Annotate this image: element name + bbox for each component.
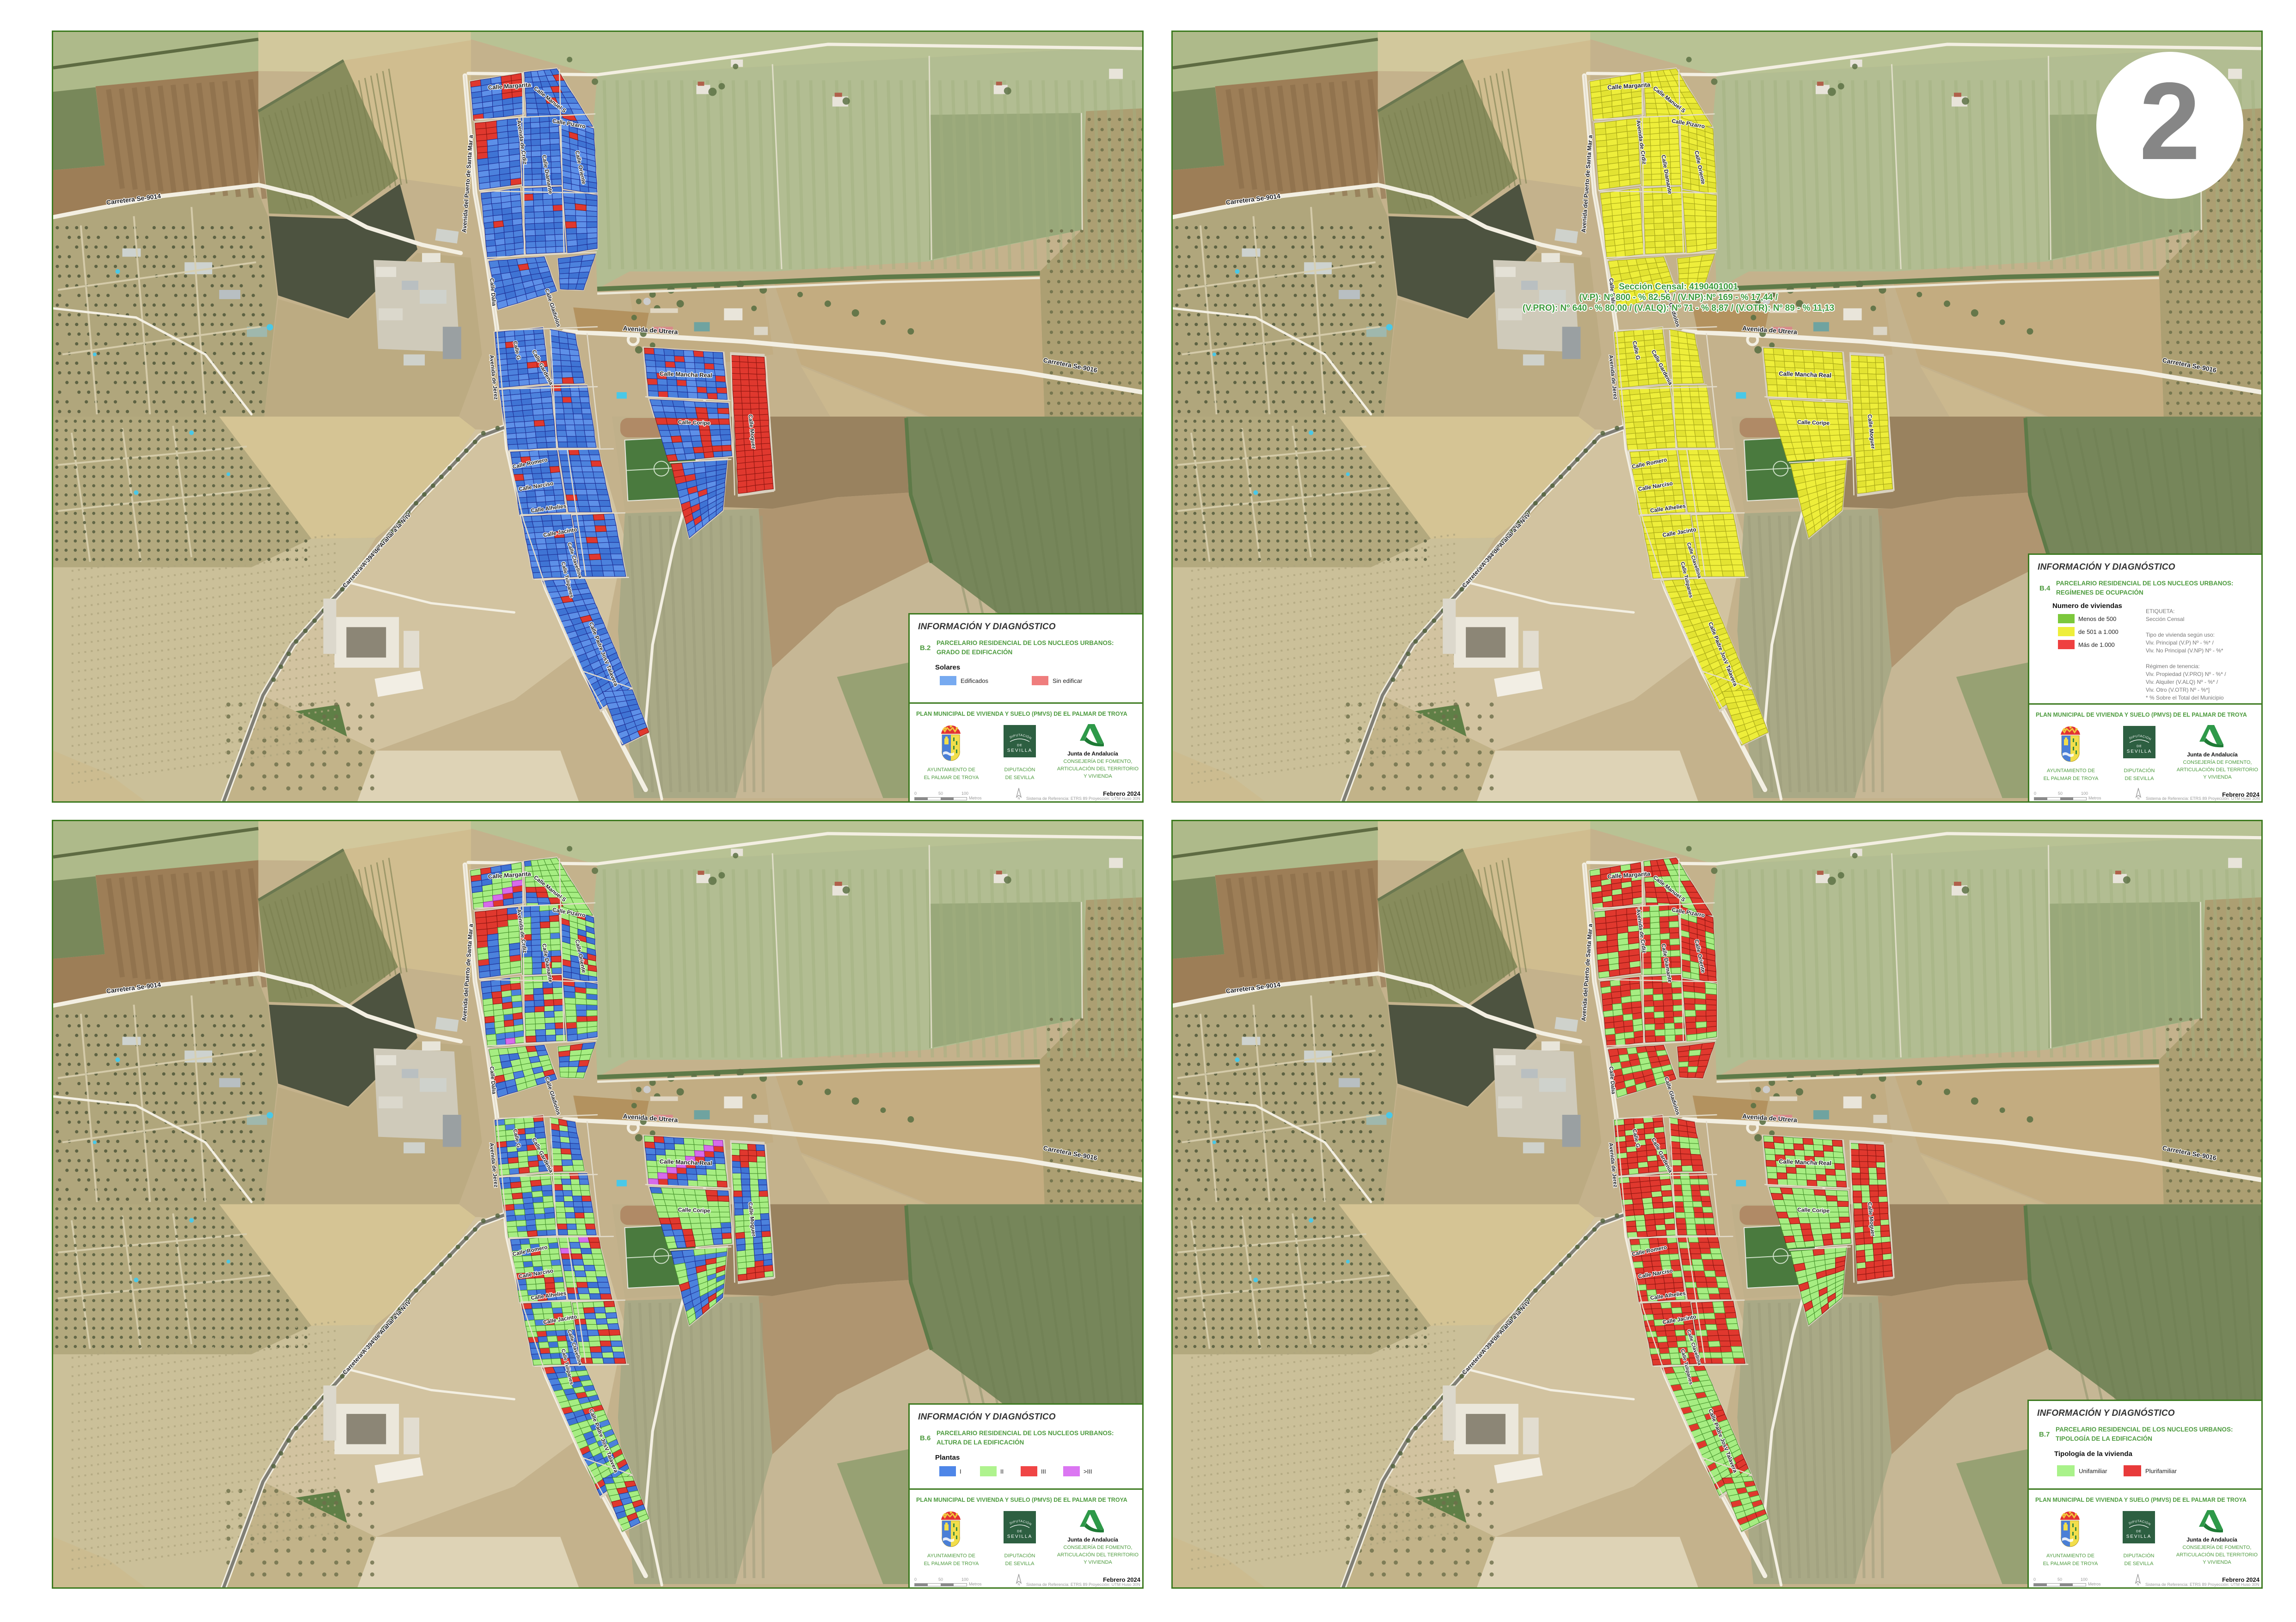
svg-text:DE: DE <box>2136 1530 2142 1533</box>
svg-text:N: N <box>2137 1583 2139 1586</box>
svg-text:DE: DE <box>1017 1530 1022 1533</box>
svg-text:N: N <box>2137 797 2139 800</box>
svg-text:SEVILLA: SEVILLA <box>1007 748 1033 753</box>
svg-text:SEVILLA: SEVILLA <box>2127 749 2152 754</box>
svg-text:DE: DE <box>1017 744 1022 747</box>
svg-text:N: N <box>1017 797 1020 800</box>
svg-text:SEVILLA: SEVILLA <box>2126 1534 2152 1539</box>
svg-text:SEVILLA: SEVILLA <box>1007 1534 1033 1539</box>
svg-text:N: N <box>1017 1583 1020 1586</box>
svg-text:DE: DE <box>2137 745 2142 748</box>
